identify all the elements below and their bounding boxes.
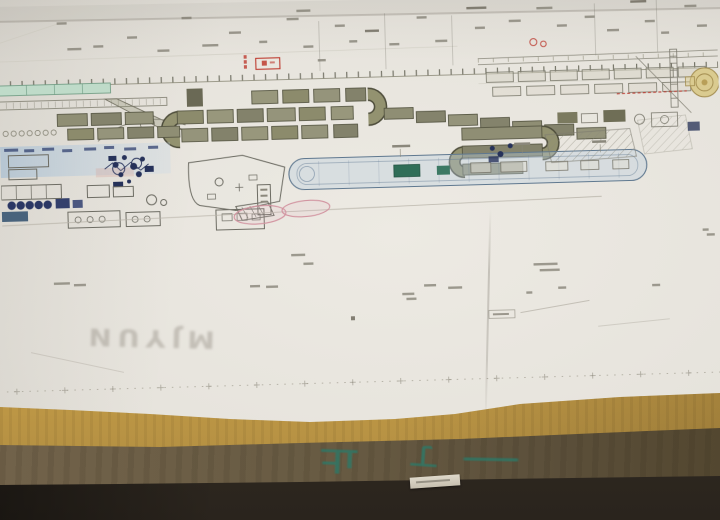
navy-circle-row [2,198,84,222]
annotation-noise-bottom [53,228,717,328]
red-check-circles [530,38,547,47]
embossed-watermark: MJYUN [83,322,216,353]
red-marker-box [244,54,280,69]
stencil-mark: 丁 [409,443,439,469]
dimension-hairlines [318,0,658,71]
blue-wash [0,142,171,180]
photo-of-blueprint: MJYUN 止 丁 一 [0,0,720,520]
stencil-mark: 止 [319,445,359,472]
outlined-machine-rows [486,66,706,96]
blueprint-linework [0,0,720,440]
serpentine-conveyors [57,87,382,145]
stencil-mark: 一 [462,444,520,471]
column-grid-line [0,50,718,88]
border-dotted-line [7,369,720,395]
annotation-noise-top [56,0,707,69]
